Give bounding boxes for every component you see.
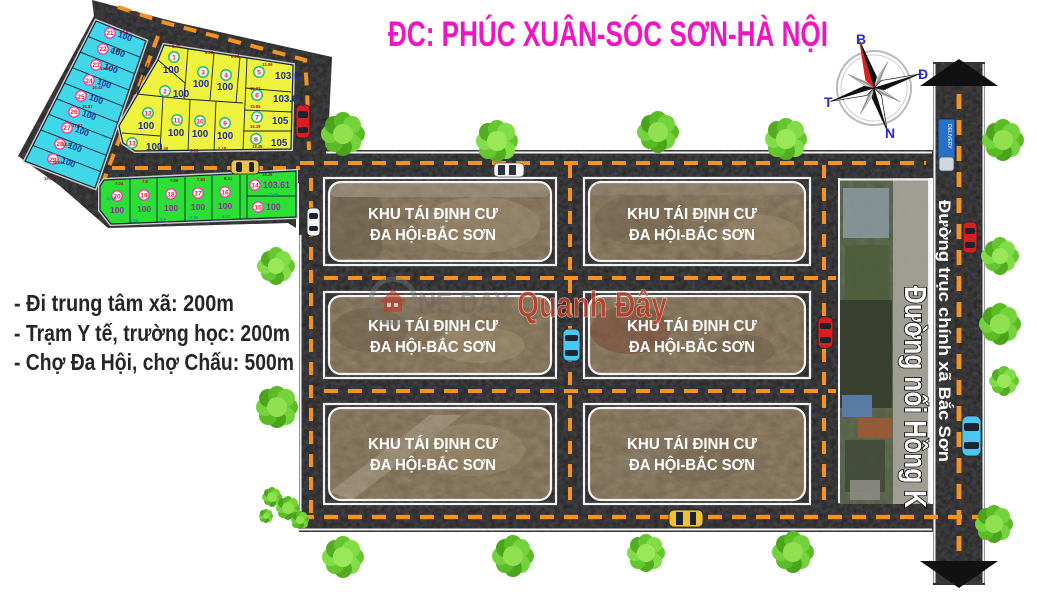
svg-text:7.8: 7.8 (142, 179, 148, 184)
svg-text:7.04: 7.04 (115, 181, 124, 186)
svg-text:- Đi trung tâm xã: 200m: - Đi trung tâm xã: 200m (14, 290, 234, 316)
svg-text:100: 100 (164, 203, 179, 213)
svg-text:13.66: 13.66 (128, 10, 139, 15)
svg-text:2: 2 (163, 89, 167, 96)
svg-text:10.58: 10.58 (268, 192, 279, 197)
svg-text:4.86: 4.86 (130, 218, 139, 223)
svg-text:25: 25 (77, 94, 85, 101)
svg-text:105: 105 (272, 116, 289, 127)
svg-text:8: 8 (254, 137, 258, 144)
svg-text:ĐC: PHÚC XUÂN-SÓC SƠN-HÀ NỘI: ĐC: PHÚC XUÂN-SÓC SƠN-HÀ NỘI (388, 14, 828, 54)
svg-text:7.93: 7.93 (197, 177, 206, 182)
svg-text:100: 100 (137, 204, 152, 214)
svg-text:23: 23 (92, 62, 100, 69)
svg-text:5.41: 5.41 (172, 44, 181, 49)
svg-text:15.85: 15.85 (250, 104, 261, 109)
svg-text:16.19: 16.19 (250, 124, 261, 129)
svg-text:Quanh Đây: Quanh Đây (517, 284, 667, 325)
svg-text:N: N (885, 125, 895, 141)
svg-text:12: 12 (144, 111, 152, 118)
svg-text:13.66: 13.66 (100, 66, 111, 71)
svg-text:19.65: 19.65 (44, 176, 55, 181)
svg-text:100: 100 (163, 65, 180, 76)
svg-text:ĐA HỘI-BẮC SƠN: ĐA HỘI-BẮC SƠN (629, 226, 755, 244)
svg-text:100: 100 (218, 201, 233, 211)
svg-text:10.04: 10.04 (106, 196, 117, 201)
svg-text:7.86: 7.86 (190, 215, 199, 220)
svg-text:ĐA HỘI-BẮC SƠN: ĐA HỘI-BẮC SƠN (370, 226, 496, 244)
svg-text:100: 100 (173, 89, 190, 100)
svg-text:24: 24 (85, 78, 93, 85)
svg-text:6.03: 6.03 (205, 50, 214, 55)
svg-text:105: 105 (271, 138, 288, 149)
svg-text:7.8: 7.8 (160, 217, 166, 222)
svg-text:17: 17 (194, 190, 202, 197)
svg-text:13.06: 13.06 (262, 62, 273, 67)
svg-text:18.12: 18.12 (62, 142, 73, 147)
svg-text:ĐA HỘI-BẮC SƠN: ĐA HỘI-BẮC SƠN (629, 338, 755, 356)
svg-text:100: 100 (217, 131, 234, 142)
svg-text:100: 100 (110, 205, 125, 215)
svg-text:27: 27 (63, 125, 71, 132)
svg-text:15.62: 15.62 (250, 86, 261, 91)
svg-text:8.41: 8.41 (224, 176, 233, 181)
svg-text:7: 7 (255, 115, 259, 122)
svg-text:14.5: 14.5 (120, 29, 129, 34)
svg-text:13.58: 13.58 (110, 48, 121, 53)
svg-text:19: 19 (140, 192, 148, 199)
svg-text:Đường nối Hồng K: Đường nối Hồng K (898, 286, 933, 508)
svg-text:14.26: 14.26 (262, 172, 273, 177)
svg-text:103.6: 103.6 (273, 94, 298, 105)
svg-text:Đ: Đ (918, 66, 928, 82)
svg-text:5: 5 (257, 70, 261, 77)
svg-text:16.87: 16.87 (82, 104, 93, 109)
svg-text:KHU TÁI ĐỊNH CƯ: KHU TÁI ĐỊNH CƯ (368, 206, 498, 223)
svg-text:8.03: 8.03 (222, 214, 231, 219)
svg-text:Đường trục chính xã Bắc Sơn: Đường trục chính xã Bắc Sơn (935, 200, 954, 462)
svg-text:100: 100 (266, 202, 281, 212)
svg-text:KHU TÁI ĐỊNH CƯ: KHU TÁI ĐỊNH CƯ (627, 206, 757, 223)
svg-text:100: 100 (168, 128, 185, 139)
svg-text:T: T (824, 94, 833, 110)
svg-text:100: 100 (193, 79, 210, 90)
svg-text:KHU TÁI ĐỊNH CƯ: KHU TÁI ĐỊNH CƯ (368, 436, 498, 453)
svg-text:100: 100 (191, 202, 206, 212)
svg-text:7.18: 7.18 (218, 146, 227, 151)
svg-text:DELIVERY: DELIVERY (946, 124, 952, 149)
svg-text:22: 22 (99, 46, 107, 53)
svg-text:103.61: 103.61 (263, 180, 290, 190)
svg-text:4: 4 (224, 73, 228, 80)
svg-text:17.63: 17.63 (72, 123, 83, 128)
svg-text:ĐA HỘI-BẮC SƠN: ĐA HỘI-BẮC SƠN (629, 456, 755, 474)
svg-text:14: 14 (251, 182, 259, 189)
svg-text:11: 11 (173, 118, 180, 125)
svg-text:KHU TÁI ĐỊNH CƯ: KHU TÁI ĐỊNH CƯ (627, 436, 757, 453)
svg-text:13: 13 (128, 141, 136, 148)
svg-text:18: 18 (167, 191, 175, 198)
svg-text:9: 9 (223, 121, 227, 128)
svg-text:100: 100 (138, 121, 155, 132)
svg-text:6: 6 (255, 93, 259, 100)
svg-text:13.45: 13.45 (252, 144, 263, 149)
svg-text:6.23: 6.23 (231, 54, 240, 59)
svg-text:103.6: 103.6 (275, 71, 300, 82)
svg-text:16.43: 16.43 (92, 85, 103, 90)
svg-text:26: 26 (70, 109, 78, 116)
svg-text:- Trạm Y tế, trường học: 200m: - Trạm Y tế, trường học: 200m (14, 320, 290, 346)
svg-text:7.86: 7.86 (170, 178, 179, 183)
svg-text:21: 21 (106, 30, 114, 37)
svg-text:ĐA HỘI-BẮC SƠN: ĐA HỘI-BẮC SƠN (370, 456, 496, 474)
svg-text:ĐA HỘI-BẮC SƠN: ĐA HỘI-BẮC SƠN (370, 338, 496, 356)
svg-text:18.64: 18.64 (52, 160, 63, 165)
svg-text:15: 15 (254, 204, 262, 211)
svg-text:NE DAY: NE DAY (418, 287, 510, 320)
svg-text:16: 16 (221, 189, 229, 196)
svg-text:1: 1 (172, 55, 176, 62)
svg-text:3: 3 (201, 70, 205, 77)
svg-text:- Chợ Đa Hội, chợ Chấu: 500m: - Chợ Đa Hội, chợ Chấu: 500m (14, 349, 294, 375)
svg-text:10: 10 (196, 119, 204, 126)
svg-text:6.86: 6.86 (190, 148, 199, 153)
svg-text:6.48: 6.48 (160, 146, 169, 151)
svg-text:100: 100 (217, 82, 234, 93)
svg-text:100: 100 (192, 129, 209, 140)
svg-text:B: B (856, 31, 866, 47)
